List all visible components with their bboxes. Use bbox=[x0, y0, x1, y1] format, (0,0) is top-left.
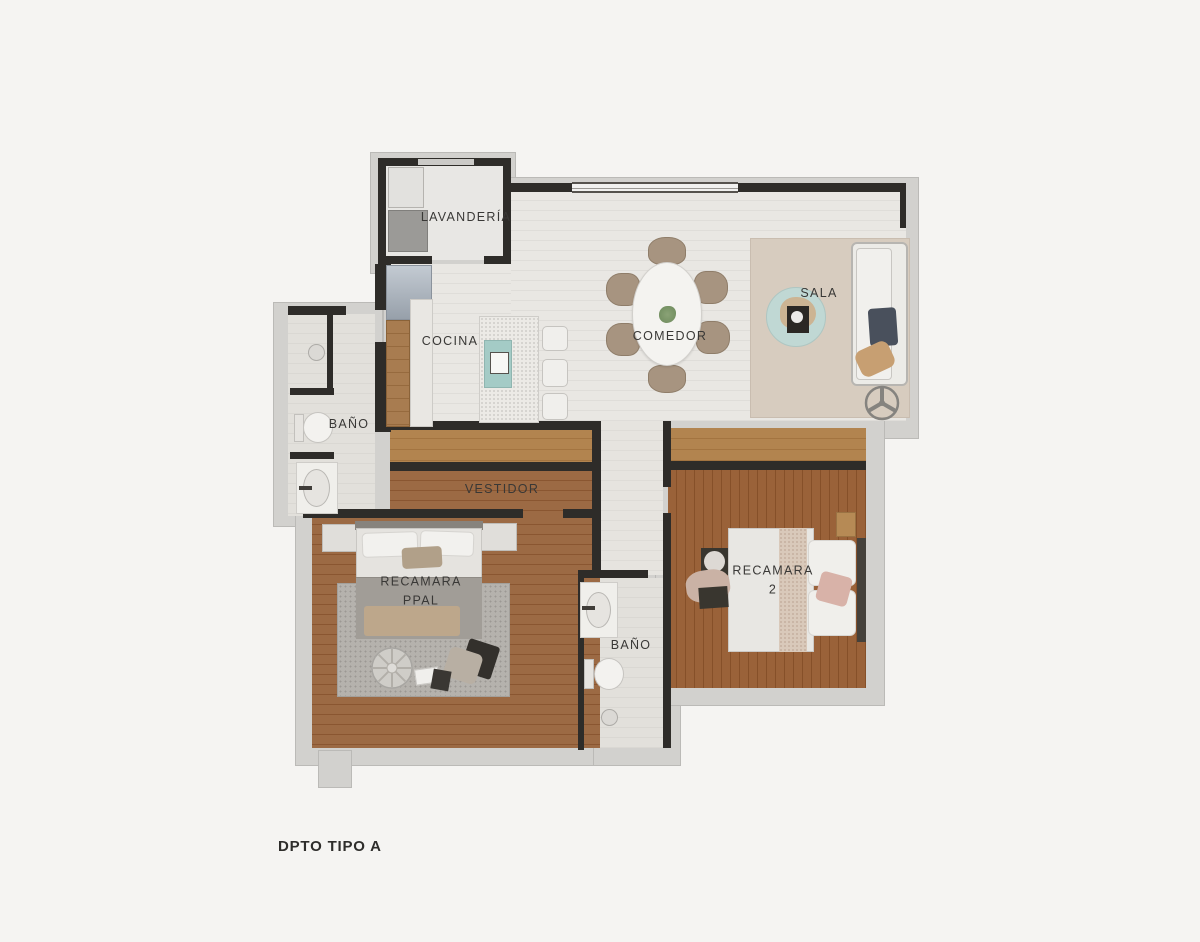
washer bbox=[388, 167, 424, 208]
wall-laundry-bottom-right bbox=[484, 256, 511, 264]
label-bano-2: BAÑO bbox=[611, 638, 652, 652]
nightstand-left bbox=[322, 524, 358, 552]
bedroom2-closet-strip bbox=[668, 428, 866, 462]
floor-plan-page: LAVANDERÍA COCINA COMEDOR SALA BAÑO VEST… bbox=[0, 0, 1200, 942]
toilet-tank bbox=[584, 659, 594, 689]
dining-chair bbox=[648, 237, 686, 265]
label-recamara-ppal-line2: PPAL bbox=[380, 592, 461, 611]
wall-bath2-top bbox=[578, 570, 648, 578]
bedroom2-headboard bbox=[857, 538, 866, 642]
label-cocina: COCINA bbox=[422, 334, 478, 348]
bed-accent-pillow bbox=[401, 546, 442, 569]
wall-living-top-left bbox=[505, 183, 572, 192]
toilet-bowl bbox=[594, 658, 624, 690]
vestidor-closet-strip bbox=[390, 428, 598, 464]
label-comedor: COMEDOR bbox=[633, 329, 707, 343]
bedroom2-nightstand bbox=[836, 512, 856, 537]
pouf bbox=[371, 647, 413, 689]
ceiling-fan-icon bbox=[862, 383, 902, 423]
dining-chair bbox=[648, 365, 686, 393]
shower-drain bbox=[601, 709, 618, 726]
bar-stool bbox=[542, 359, 568, 387]
wall-laundry-left bbox=[378, 158, 386, 264]
vanity-faucet bbox=[299, 486, 312, 490]
bedroom2-closet-front bbox=[668, 461, 866, 470]
wall-sala-right-corner bbox=[900, 183, 906, 228]
living-window bbox=[572, 182, 738, 193]
label-vestidor: VESTIDOR bbox=[465, 482, 539, 496]
label-recamara-2: RECAMARA 2 bbox=[732, 562, 813, 601]
bar-stool bbox=[542, 326, 568, 351]
label-recamara-ppal: RECAMARA PPAL bbox=[380, 573, 461, 612]
wall-bath1-partition bbox=[290, 452, 334, 459]
wall-corridor-right-lower bbox=[663, 513, 671, 748]
label-recamara-2-line1: RECAMARA bbox=[732, 562, 813, 581]
wall-master-top-right bbox=[563, 509, 600, 518]
vanity-basin bbox=[586, 592, 611, 628]
plan-title: DPTO TIPO A bbox=[278, 838, 382, 855]
label-bano-1: BAÑO bbox=[329, 417, 370, 431]
label-sala: SALA bbox=[800, 286, 837, 300]
wall-laundry-bottom-left bbox=[378, 256, 432, 264]
corridor-floor bbox=[600, 421, 663, 575]
wall-corridor-right-upper bbox=[663, 421, 671, 487]
kitchen-counter bbox=[410, 299, 433, 427]
nightstand-right bbox=[479, 523, 517, 551]
bar-stool bbox=[542, 393, 568, 420]
apartment-floor-plan: LAVANDERÍA COCINA COMEDOR SALA BAÑO VEST… bbox=[0, 0, 1200, 942]
label-recamara-ppal-line1: RECAMARA bbox=[380, 573, 461, 592]
wall-bath1-shower-side bbox=[327, 314, 333, 390]
vestidor-closet-front bbox=[390, 462, 598, 471]
wall-living-top-right bbox=[738, 183, 906, 192]
label-recamara-2-line2: 2 bbox=[732, 581, 813, 600]
wall-bath1-top bbox=[288, 306, 346, 315]
laundry-window bbox=[418, 159, 474, 165]
wall-bath1-shower-front bbox=[290, 388, 334, 395]
coffee-table-bowl bbox=[791, 311, 803, 323]
label-lavanderia: LAVANDERÍA bbox=[421, 210, 511, 224]
wall-corridor-left bbox=[592, 421, 601, 575]
vanity-faucet bbox=[582, 606, 595, 610]
floor-book bbox=[430, 669, 451, 692]
sink-basin bbox=[490, 352, 509, 374]
exterior-wall-stub bbox=[318, 750, 352, 788]
bedroom2-bench bbox=[698, 586, 728, 609]
shower-drain bbox=[308, 344, 325, 361]
kitchen-tall-cabinets bbox=[386, 320, 410, 427]
